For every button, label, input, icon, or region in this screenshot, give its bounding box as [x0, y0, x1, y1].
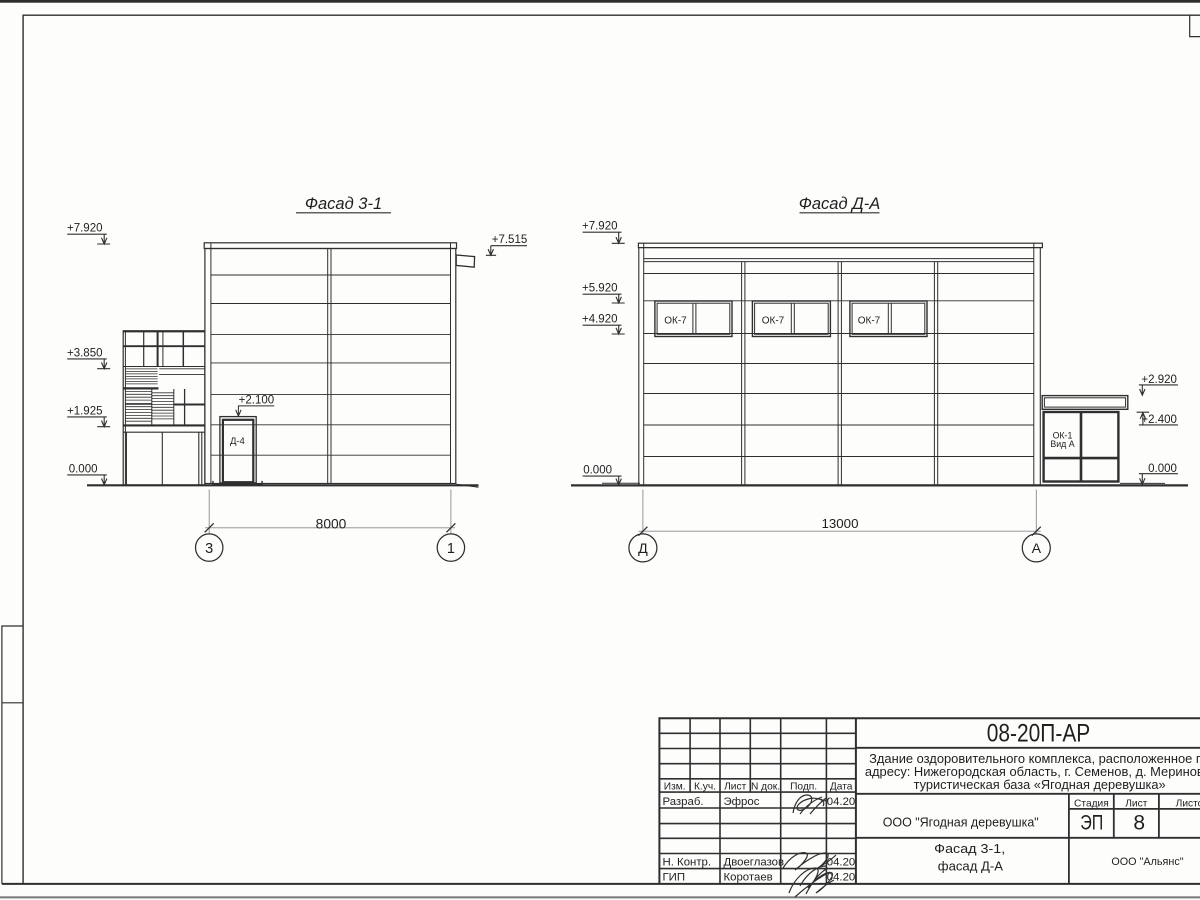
- svg-text:ОК-7: ОК-7: [858, 315, 881, 326]
- svg-text:Н. Контр.: Н. Контр.: [663, 856, 712, 868]
- svg-text:ЭП: ЭП: [1080, 812, 1103, 835]
- svg-text:Разраб.: Разраб.: [663, 796, 704, 808]
- svg-text:Лист: Лист: [1125, 798, 1147, 809]
- svg-text:+3.850: +3.850: [67, 347, 103, 359]
- svg-text:ООО "Альянс": ООО "Альянс": [1111, 856, 1183, 868]
- svg-text:Вид А: Вид А: [1050, 439, 1074, 449]
- svg-text:Д: Д: [638, 541, 648, 557]
- svg-text:ООО "Ягодная деревушка": ООО "Ягодная деревушка": [883, 814, 1039, 829]
- svg-text:Двоеглазов: Двоеглазов: [724, 856, 785, 868]
- svg-text:13000: 13000: [822, 516, 859, 531]
- svg-text:Фасад 3-1,: Фасад 3-1,: [934, 841, 1005, 856]
- svg-text:Подп.: Подп.: [790, 782, 817, 793]
- svg-text:Дата: Дата: [830, 782, 853, 793]
- svg-text:К.уч.: К.уч.: [694, 782, 716, 793]
- svg-text:04.20: 04.20: [827, 856, 856, 868]
- svg-text:N док.: N док.: [751, 782, 780, 793]
- svg-text:Фасад Д-А: Фасад Д-А: [799, 195, 881, 213]
- svg-text:+7.920: +7.920: [67, 223, 103, 235]
- svg-text:+5.920: +5.920: [582, 283, 618, 295]
- svg-text:туристическая база «Ягодная де: туристическая база «Ягодная деревушка»: [914, 777, 1166, 792]
- svg-text:фасад Д-А: фасад Д-А: [938, 858, 1003, 873]
- svg-text:8000: 8000: [316, 517, 347, 532]
- svg-text:+2.920: +2.920: [1141, 374, 1177, 386]
- svg-text:3: 3: [205, 541, 213, 557]
- svg-text:Изм.: Изм.: [664, 782, 686, 793]
- svg-text:04.20: 04.20: [827, 796, 856, 808]
- svg-text:Стадия: Стадия: [1074, 798, 1109, 809]
- svg-text:А: А: [1032, 541, 1042, 557]
- svg-text:0.000: 0.000: [69, 463, 98, 475]
- svg-text:Коротаев: Коротаев: [724, 872, 773, 884]
- svg-text:ОК-7: ОК-7: [664, 315, 687, 326]
- svg-text:+1.925: +1.925: [67, 405, 103, 417]
- svg-text:Листов: Листов: [1176, 798, 1200, 809]
- svg-text:+2.400: +2.400: [1141, 414, 1177, 426]
- svg-text:Эфрос: Эфрос: [724, 796, 760, 808]
- svg-text:ГИП: ГИП: [663, 872, 686, 884]
- svg-text:1: 1: [447, 541, 455, 557]
- svg-text:Д-4: Д-4: [230, 436, 245, 447]
- svg-text:Фасад 3-1: Фасад 3-1: [305, 195, 382, 213]
- svg-text:+4.920: +4.920: [582, 314, 618, 326]
- svg-text:0.000: 0.000: [1148, 463, 1177, 475]
- svg-text:ОК-7: ОК-7: [762, 315, 785, 326]
- svg-text:Лист: Лист: [724, 782, 746, 793]
- svg-text:+7.515: +7.515: [492, 234, 528, 246]
- svg-text:0.000: 0.000: [583, 465, 612, 477]
- svg-text:+7.920: +7.920: [582, 221, 618, 233]
- svg-text:+2.100: +2.100: [239, 395, 275, 407]
- svg-text:08-20П-АР: 08-20П-АР: [987, 719, 1091, 747]
- svg-text:8: 8: [1133, 812, 1145, 835]
